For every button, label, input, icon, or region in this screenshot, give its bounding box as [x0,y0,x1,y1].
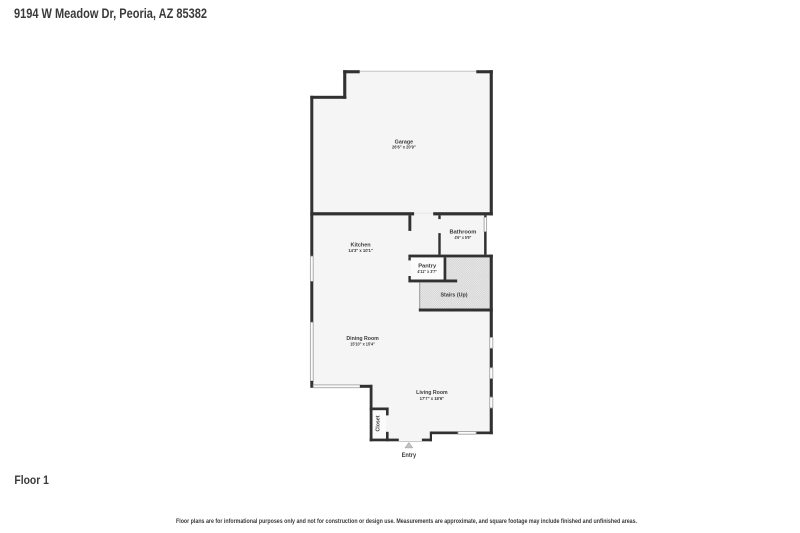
svg-text:26'6" x 20'9": 26'6" x 20'9" [392,145,416,150]
svg-text:Closet: Closet [376,415,382,431]
svg-text:Stairs (Up): Stairs (Up) [441,293,468,299]
svg-text:9194 W Meadow Dr, Peoria, AZ 8: 9194 W Meadow Dr, Peoria, AZ 85382 [14,6,207,21]
svg-text:14'3" x 10'1": 14'3" x 10'1" [348,248,373,253]
svg-text:17'7" x 18'6": 17'7" x 18'6" [420,396,445,401]
svg-text:Floor plans are for informatio: Floor plans are for informational purpos… [176,518,637,525]
svg-text:4'11" x 3'7": 4'11" x 3'7" [417,269,437,274]
svg-text:Floor 1: Floor 1 [14,474,49,487]
svg-text:15'10" x 15'4": 15'10" x 15'4" [350,342,375,347]
svg-text:Entry: Entry [402,452,417,459]
svg-text:4'6" x 5'9": 4'6" x 5'9" [454,235,471,240]
